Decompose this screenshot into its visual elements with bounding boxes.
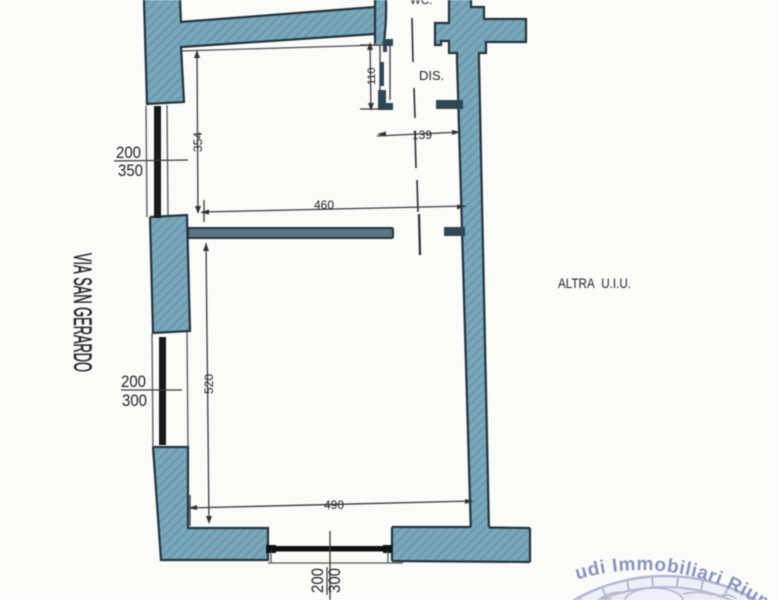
svg-text:DIS.: DIS. xyxy=(419,68,444,83)
svg-text:110: 110 xyxy=(366,67,378,85)
svg-text:490: 490 xyxy=(324,498,344,512)
svg-text:350: 350 xyxy=(118,162,143,180)
svg-text:460: 460 xyxy=(314,198,334,212)
svg-text:300: 300 xyxy=(326,568,344,593)
svg-text:139: 139 xyxy=(412,128,432,142)
svg-text:200: 200 xyxy=(121,373,146,391)
svg-text:300: 300 xyxy=(122,392,147,410)
svg-text:354: 354 xyxy=(191,132,205,152)
svg-text:WC.: WC. xyxy=(410,0,432,7)
svg-text:520: 520 xyxy=(202,374,216,394)
svg-text:VIA SAN GERARDO: VIA SAN GERARDO xyxy=(68,253,96,372)
svg-text:ALTRA U.I.U.: ALTRA U.I.U. xyxy=(558,276,631,291)
svg-text:200: 200 xyxy=(116,144,141,162)
svg-text:200: 200 xyxy=(309,568,327,593)
